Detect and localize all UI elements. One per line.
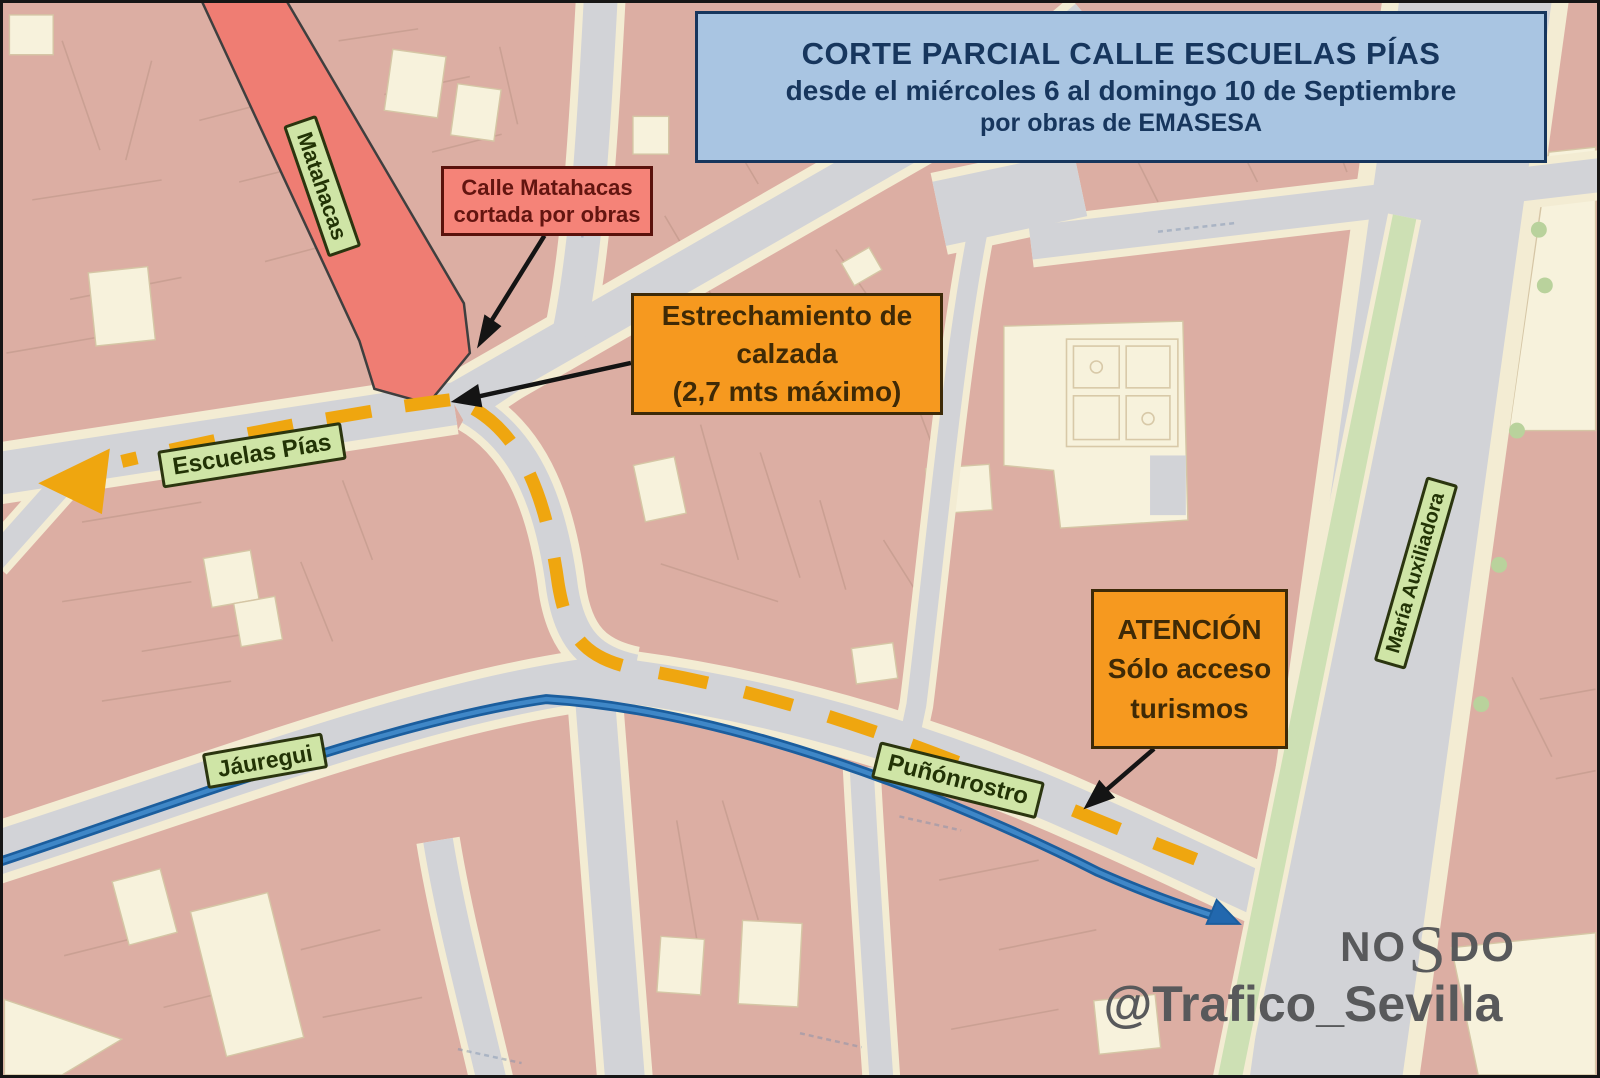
closed-street-callout-line2: cortada por obras — [453, 201, 640, 229]
attention-callout-line2: Sólo acceso — [1108, 649, 1271, 688]
attention-callout-title: ATENCIÓN — [1117, 610, 1261, 649]
nosdo-motto: NOSDO — [1340, 923, 1516, 971]
narrowing-callout-line1: Estrechamiento de — [662, 297, 913, 335]
closed-street-callout: Calle Matahacas cortada por obras — [441, 166, 653, 236]
narrowing-callout-line3: (2,7 mts máximo) — [673, 373, 902, 411]
header-banner: CORTE PARCIAL CALLE ESCUELAS PÍAS desde … — [695, 11, 1547, 163]
header-title: CORTE PARCIAL CALLE ESCUELAS PÍAS — [802, 35, 1441, 74]
nosdo-right: DO — [1449, 923, 1516, 971]
map-canvas — [3, 3, 1597, 1075]
nosdo-left: NO — [1340, 923, 1407, 971]
nosdo-madeja-icon: S — [1408, 929, 1448, 969]
narrowing-callout-line2: calzada — [736, 335, 837, 373]
header-dates: desde el miércoles 6 al domingo 10 de Se… — [786, 73, 1457, 108]
closed-street-callout-line1: Calle Matahacas — [461, 174, 632, 202]
attention-callout: ATENCIÓN Sólo acceso turismos — [1091, 589, 1288, 749]
narrowing-callout: Estrechamiento de calzada (2,7 mts máxim… — [631, 293, 943, 415]
traffic-map: CORTE PARCIAL CALLE ESCUELAS PÍAS desde … — [0, 0, 1600, 1078]
header-reason: por obras de EMASESA — [980, 108, 1262, 139]
twitter-handle: @Trafico_Sevilla — [1104, 975, 1503, 1033]
attention-callout-line3: turismos — [1130, 689, 1248, 728]
